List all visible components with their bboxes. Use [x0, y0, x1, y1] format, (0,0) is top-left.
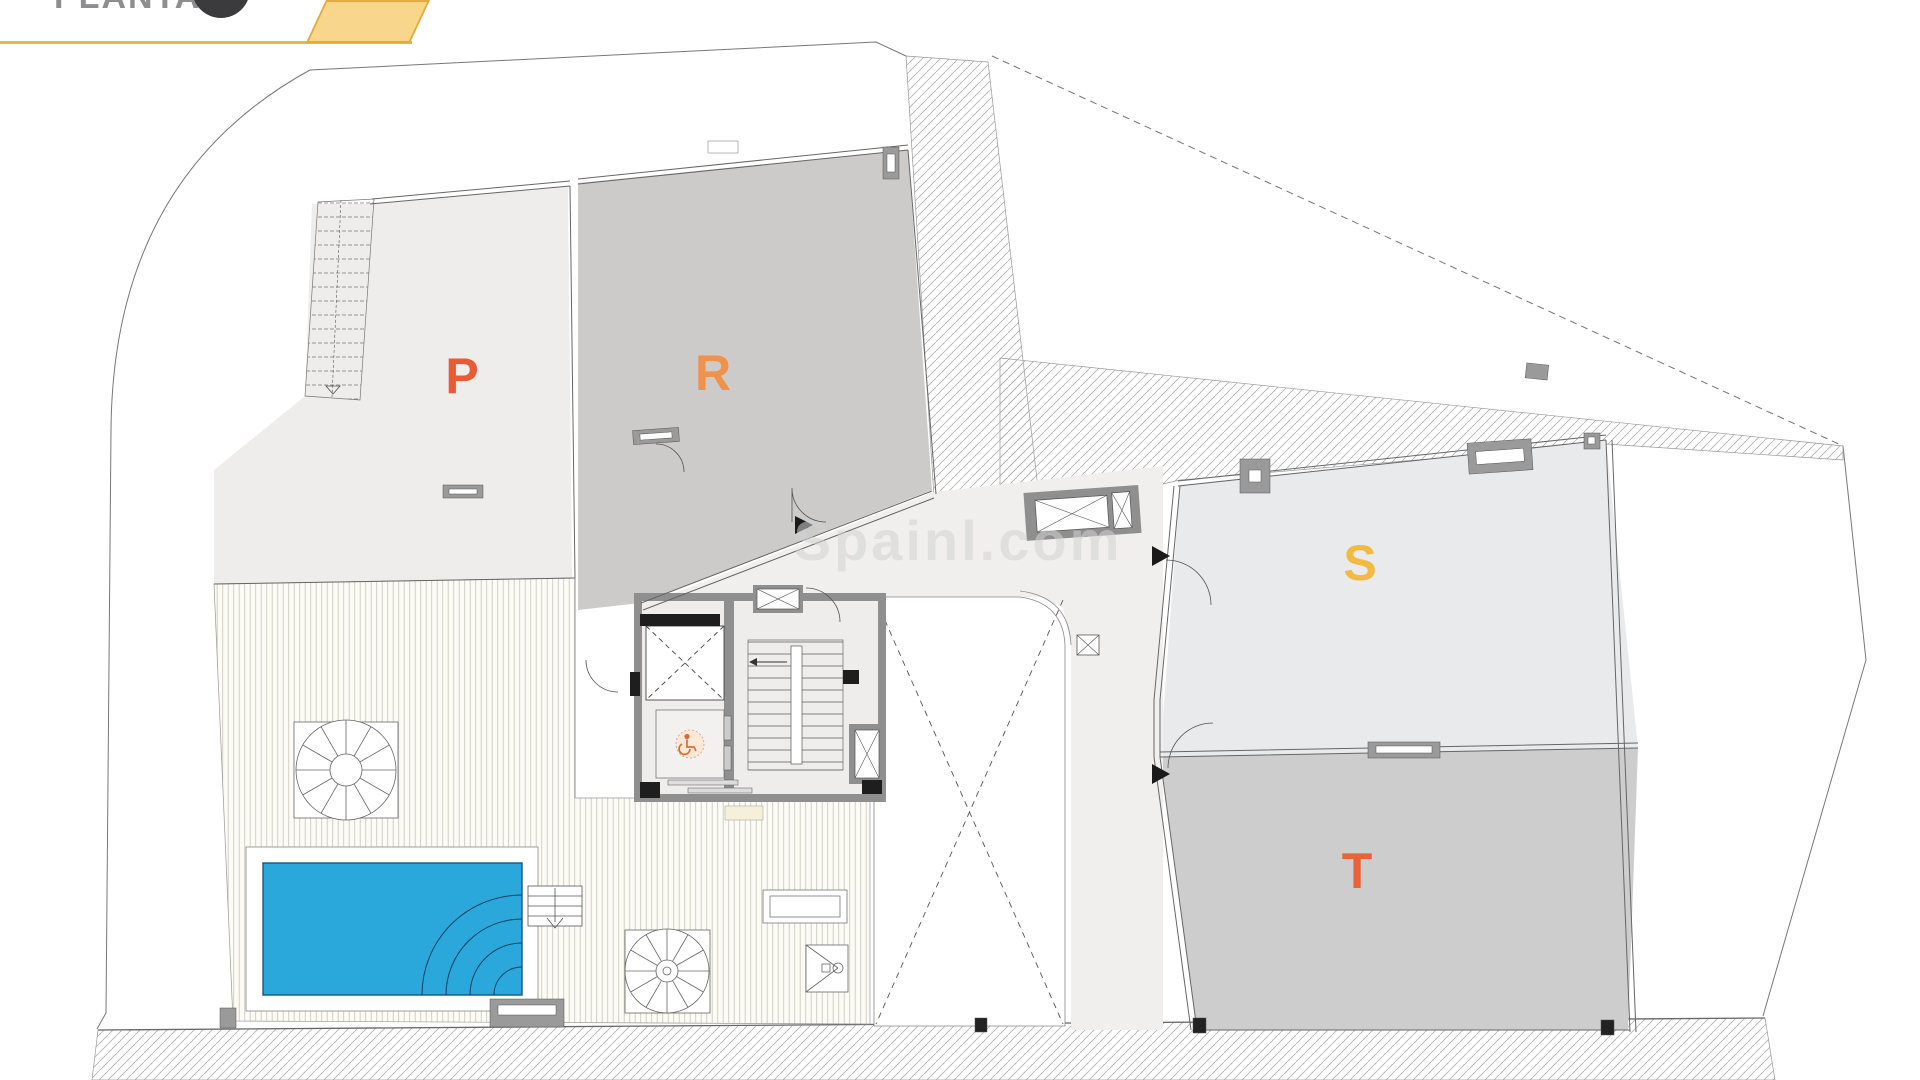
wall-black-lintel [640, 614, 720, 626]
wall-black-accent-1 [640, 782, 660, 798]
vent-shaft-top [753, 585, 803, 613]
vent-shaft-right [849, 724, 885, 784]
wall-vent [220, 1008, 236, 1028]
unit-label-p: P [445, 348, 478, 404]
wall-vent [490, 999, 564, 1027]
wall-vent [1368, 742, 1440, 758]
door-jamb [1193, 1018, 1206, 1033]
deck-bench [725, 806, 763, 820]
wall-vent [633, 427, 680, 444]
header-bar: PLANTA [0, 0, 412, 44]
door-jamb [1601, 1020, 1614, 1035]
deck-planter [763, 890, 847, 923]
spiral-staircase-bottom [625, 929, 710, 1013]
wall-vent [443, 485, 483, 498]
wall-black-accent-3 [862, 780, 882, 794]
elevator-shaft-main [646, 626, 724, 700]
wall-vent [1467, 439, 1533, 474]
unit-label-t: T [1342, 843, 1373, 899]
wall-black-accent-4 [630, 672, 640, 696]
wall-vent [1584, 433, 1600, 449]
void-double-height [874, 591, 1071, 1026]
wall-black-accent-2 [843, 670, 859, 684]
shower-tray [806, 945, 848, 992]
pool-steps [528, 886, 582, 928]
stair-flight [748, 640, 843, 770]
wall-vent [883, 147, 899, 179]
unit-label-s: S [1343, 535, 1376, 591]
watermark: Spainl.com [794, 509, 1123, 572]
wall-window [708, 141, 738, 153]
unit-t-area [1160, 748, 1638, 1030]
header-flag-shape [306, 0, 430, 43]
spiral-staircase-left [294, 720, 398, 820]
wall-stub [1525, 363, 1548, 380]
unit-s-area [1160, 440, 1638, 757]
unit-label-r: R [695, 345, 731, 401]
floor-plan: P R S T Spainl.com [0, 0, 1920, 1080]
door-jamb [975, 1018, 987, 1032]
swimming-pool [246, 847, 538, 1011]
wall-vent [1240, 459, 1270, 493]
plan-level-title: PLANTA [54, 0, 201, 17]
stair-core [630, 585, 885, 798]
corridor-vent [1077, 635, 1099, 655]
unit-p-area [214, 186, 572, 584]
